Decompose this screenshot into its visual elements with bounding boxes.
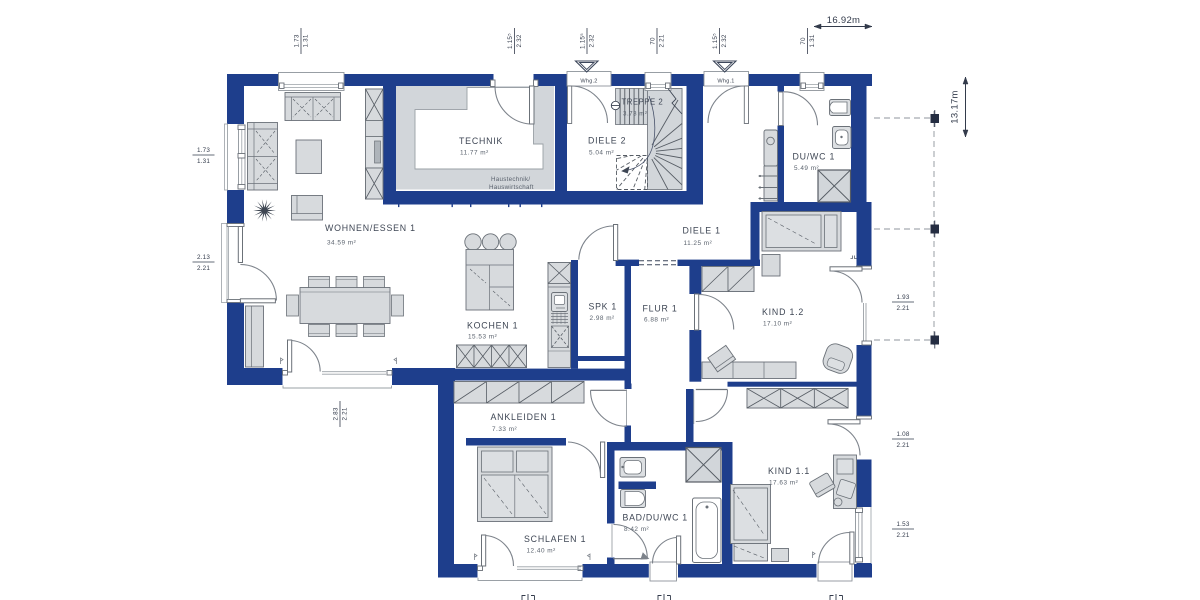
svg-text:70: 70 — [650, 37, 657, 45]
svg-text:1.15⁵: 1.15⁵ — [712, 33, 719, 49]
svg-text:Hauswirtschaft: Hauswirtschaft — [489, 184, 534, 191]
svg-text:11.77 m²: 11.77 m² — [460, 150, 489, 157]
svg-text:KOCHEN 1: KOCHEN 1 — [467, 321, 518, 331]
svg-text:1.73: 1.73 — [197, 147, 210, 154]
svg-text:DU/WC 1: DU/WC 1 — [793, 152, 836, 162]
svg-text:2.21: 2.21 — [896, 532, 909, 539]
svg-text:1.73: 1.73 — [294, 34, 301, 47]
svg-text:ANKLEIDEN 1: ANKLEIDEN 1 — [491, 412, 557, 422]
svg-text:15.53 m²: 15.53 m² — [468, 334, 497, 341]
svg-text:Whg.1: Whg.1 — [717, 79, 734, 85]
svg-text:1.15⁵: 1.15⁵ — [507, 33, 514, 49]
svg-text:DIELE 1: DIELE 1 — [683, 226, 721, 236]
svg-text:1.31: 1.31 — [303, 34, 310, 47]
svg-text:TREPPE 2: TREPPE 2 — [622, 98, 664, 107]
svg-text:BAD/DU/WC 1: BAD/DU/WC 1 — [623, 513, 688, 523]
svg-text:70: 70 — [800, 37, 807, 45]
svg-text:DIELE 2: DIELE 2 — [588, 136, 626, 146]
svg-text:11.25 m²: 11.25 m² — [684, 240, 713, 247]
svg-text:17.10 m²: 17.10 m² — [763, 321, 792, 328]
svg-text:KIND 1.2: KIND 1.2 — [762, 307, 804, 317]
svg-text:7.33 m²: 7.33 m² — [492, 426, 517, 433]
svg-text:17.63 m²: 17.63 m² — [769, 480, 798, 487]
svg-text:6.88 m²: 6.88 m² — [644, 317, 669, 324]
svg-text:2.32: 2.32 — [721, 34, 728, 47]
svg-text:2.21: 2.21 — [896, 305, 909, 312]
svg-text:1.08: 1.08 — [896, 431, 909, 438]
svg-text:Whg.2: Whg.2 — [580, 79, 597, 85]
svg-text:16.92m: 16.92m — [827, 15, 861, 26]
svg-text:SCHLAFEN 1: SCHLAFEN 1 — [524, 534, 586, 544]
svg-text:2.83: 2.83 — [333, 407, 340, 420]
svg-text:2.32: 2.32 — [589, 34, 596, 47]
svg-text:2.21: 2.21 — [896, 442, 909, 449]
svg-text:12.40 m²: 12.40 m² — [527, 548, 556, 555]
svg-text:1.93: 1.93 — [896, 294, 909, 301]
svg-text:SPK 1: SPK 1 — [589, 302, 617, 312]
svg-text:2.21: 2.21 — [197, 265, 210, 272]
svg-text:5.04 m²: 5.04 m² — [589, 150, 614, 157]
svg-text:2.32: 2.32 — [516, 34, 523, 47]
svg-text:1.31: 1.31 — [809, 34, 816, 47]
svg-text:Haustechnik/: Haustechnik/ — [491, 176, 530, 183]
svg-text:2.98 m²: 2.98 m² — [590, 315, 615, 322]
svg-text:KIND 1.1: KIND 1.1 — [768, 466, 810, 476]
svg-text:3.73 m²: 3.73 m² — [623, 111, 647, 118]
svg-text:FLUR 1: FLUR 1 — [643, 304, 678, 314]
svg-text:13.17m: 13.17m — [950, 90, 961, 124]
svg-text:1.31: 1.31 — [197, 158, 210, 165]
svg-text:2.13: 2.13 — [197, 254, 210, 261]
svg-text:8.42 m²: 8.42 m² — [624, 526, 649, 533]
svg-text:2.21: 2.21 — [342, 407, 349, 420]
svg-text:5.49 m²: 5.49 m² — [794, 165, 819, 172]
svg-text:1.53: 1.53 — [896, 521, 909, 528]
svg-text:2.21: 2.21 — [659, 34, 666, 47]
svg-text:TECHNIK: TECHNIK — [459, 136, 503, 146]
svg-text:1.15⁵: 1.15⁵ — [580, 33, 587, 49]
svg-text:34.59 m²: 34.59 m² — [327, 240, 356, 247]
svg-text:WOHNEN/ESSEN 1: WOHNEN/ESSEN 1 — [325, 223, 416, 233]
